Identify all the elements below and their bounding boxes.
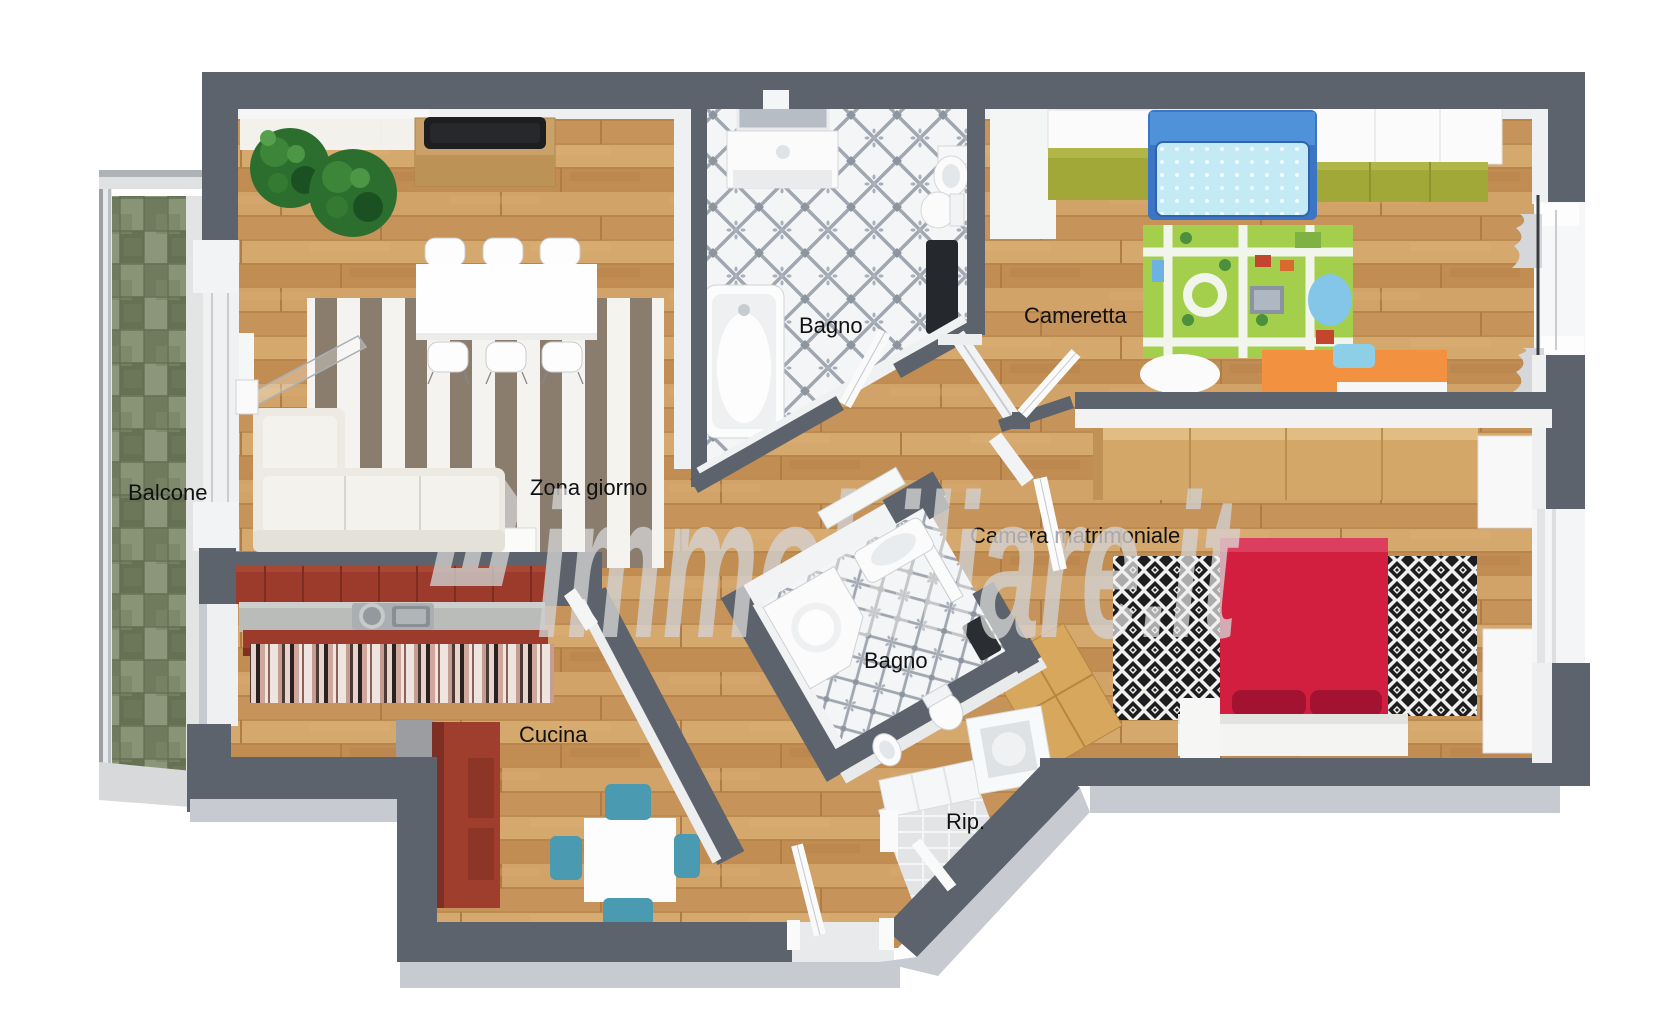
svg-text:Cucina: Cucina: [519, 722, 588, 747]
svg-text:Balcone: Balcone: [128, 480, 208, 505]
svg-text:Bagno: Bagno: [799, 313, 863, 338]
svg-text:immobiliare.it: immobiliare.it: [537, 452, 1241, 681]
svg-text:Rip.: Rip.: [946, 809, 985, 834]
svg-text:Cameretta: Cameretta: [1024, 303, 1127, 328]
